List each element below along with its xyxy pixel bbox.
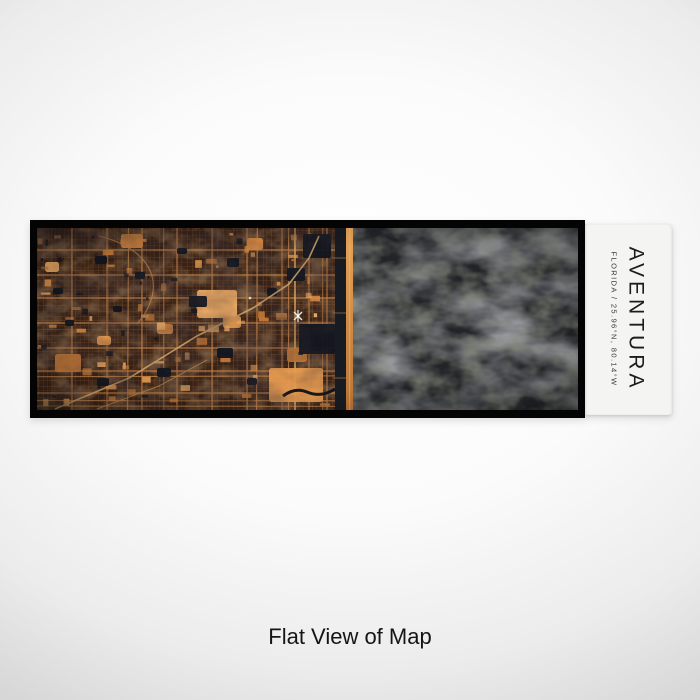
city-title: AVENTURA bbox=[622, 227, 648, 412]
map-vignette bbox=[37, 228, 578, 410]
region-coordinates: FLORIDA / 25.96°N, 80.14°W bbox=[609, 227, 618, 412]
view-caption: Flat View of Map bbox=[0, 624, 700, 650]
label-text-block: AVENTURA FLORIDA / 25.96°N, 80.14°W bbox=[609, 227, 648, 412]
map-graphic bbox=[37, 228, 578, 410]
flat-map-product: AVENTURA FLORIDA / 25.96°N, 80.14°W bbox=[30, 220, 672, 418]
label-panel: AVENTURA FLORIDA / 25.96°N, 80.14°W bbox=[585, 224, 672, 415]
map-frame bbox=[30, 220, 585, 418]
